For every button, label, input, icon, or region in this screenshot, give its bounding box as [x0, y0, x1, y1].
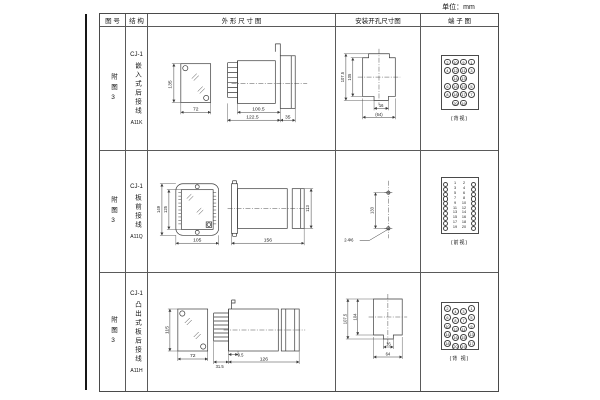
row2-model: CJ-1	[130, 184, 143, 190]
dim-r2-install-h: 133	[370, 206, 375, 214]
row3-terminal-grid: 2431687510121191416151318201917	[444, 305, 476, 348]
row2-terminal-grid: 1234567891011121314151617181920	[451, 181, 469, 230]
terminal-pin: 1	[468, 305, 475, 312]
row1-terminal-box: 2109141211314136161558181772019	[441, 55, 479, 110]
row3-terminal-caption: (背 视)	[450, 355, 470, 362]
row2-fig-no: 附图3	[108, 196, 118, 228]
dim-r3-side-1: 31.5	[216, 364, 225, 369]
row1-terminal-caption: (背视)	[451, 115, 468, 122]
terminal-pin: 14	[444, 331, 451, 338]
row3-terminal-cell: 2431687510121191416151318201917 (背 视)	[421, 273, 498, 391]
row1-side-view: 100.5 122.5 35	[228, 44, 308, 122]
terminal-pin: 5	[468, 314, 475, 321]
row3-outline-drawing: 115 72 9.5 31.5 126	[148, 273, 335, 391]
row1-front-view: 135 72	[167, 64, 210, 115]
row1-model: CJ-1	[130, 52, 143, 58]
row3-install-drawing-cell: 107.5 104 16 64	[336, 273, 421, 391]
dim-r1-front-width: 72	[193, 106, 199, 112]
terminal-pin: 16	[452, 83, 459, 90]
terminal-pin: 20	[460, 225, 469, 230]
row3-fig-no-cell: 附图3	[100, 273, 126, 391]
unit-label: 单位：mm	[420, 2, 497, 12]
row3-side-view: 9.5 31.5 126	[214, 300, 306, 369]
row1-fig-no-cell: 附图3	[100, 27, 126, 151]
terminal-pin: 9	[460, 59, 467, 66]
row2-install-drawing-cell: 133 2-Φ6	[336, 151, 421, 273]
terminal-pin: 19	[460, 343, 467, 350]
terminal-pin: 7	[468, 91, 475, 98]
row1-structure-cell: CJ-1 嵌入式后接线 A11K	[126, 27, 148, 151]
terminal-pin: 13	[460, 75, 467, 82]
terminal-pin: 9	[468, 323, 475, 330]
dim-r1-install-w2: (64)	[375, 112, 383, 117]
terminal-pin: 3	[460, 308, 467, 315]
terminal-pin: 4	[444, 67, 451, 74]
row3-fig-no: 附图3	[108, 316, 118, 348]
row2-side-view: 156 113	[228, 181, 314, 245]
row3-code: A11H	[130, 368, 142, 374]
terminal-pin: 18	[444, 340, 451, 347]
terminal-pin: 3	[468, 67, 475, 74]
row1-install-drawing-cell: 107.5 105 16 (64)	[336, 27, 421, 151]
terminal-pin: 1	[468, 59, 475, 66]
terminal-pin: 5	[468, 83, 475, 90]
header-terminal-diagram: 端 子 图	[421, 14, 498, 27]
dim-r2-side-height: 113	[305, 205, 310, 212]
dim-r3-front-height: 115	[164, 326, 170, 334]
terminal-pin: 18	[452, 91, 459, 98]
dim-r2-front-h2: 125	[163, 205, 168, 213]
terminal-pin: 10	[444, 323, 451, 330]
terminal-pin: 2	[444, 59, 451, 66]
terminal-pin: 15	[460, 334, 467, 341]
dim-r1-side-3: 35	[285, 115, 291, 121]
row2-install-drawing: 133 2-Φ6	[336, 151, 420, 272]
row2-code: A11Q	[130, 234, 142, 240]
row3-terminal-box: 2431687510121191416151318201917	[441, 302, 479, 351]
terminal-pin: 10	[452, 59, 459, 66]
dim-r2-front-h1: 149	[156, 205, 161, 213]
dim-r3-install-h1: 107.5	[342, 313, 347, 324]
row2-outline-drawing: 149 125 105 156 113	[148, 151, 335, 272]
terminal-pin: 12	[452, 67, 459, 74]
row1-fig-no: 附图3	[108, 73, 118, 105]
row2-structure-cell: CJ-1 板前接线 A11Q	[126, 151, 148, 273]
terminal-pin: 6	[444, 314, 451, 321]
terminal-pin: 8	[444, 91, 451, 98]
terminal-pin: 2	[444, 305, 451, 312]
row1-terminal-grid: 2109141211314136161558181772019	[444, 58, 476, 107]
header-outline-dims: 外 形 尺 寸 图	[148, 14, 336, 27]
header-fig-no: 图 号	[100, 14, 126, 27]
terminal-pin: 7	[460, 317, 467, 324]
terminal-pin: 16	[452, 334, 459, 341]
row1-terminal-cell: 2109141211314136161558181772019 (背视)	[421, 27, 498, 151]
row2-terminal-cell: 1234567891011121314151617181920 (前视)	[421, 151, 498, 273]
row3-structure-cell: CJ-1 凸出式板后接线 A11H	[126, 273, 148, 391]
row2-front-view: 149 125 105	[156, 184, 219, 245]
terminal-pin: 4	[452, 308, 459, 315]
dim-r3-side-2: 9.5	[238, 352, 244, 357]
terminal-pin: 11	[460, 326, 467, 333]
header-install-holes: 安装开孔尺寸图	[336, 14, 421, 27]
row2-fig-no-cell: 附图3	[100, 151, 126, 273]
row2-terminal-caption: (前视)	[451, 239, 468, 246]
terminal-pin: 12	[452, 326, 459, 333]
header-structure: 结 构	[126, 14, 148, 27]
row1-outline-drawing: 135 72 100.5 122.5 35	[148, 27, 335, 150]
terminal-pin: 6	[444, 83, 451, 90]
spec-table: 图 号 结 构 外 形 尺 寸 图 安装开孔尺寸图 端 子 图 附图3 CJ-1…	[99, 13, 499, 392]
page-edge-artifact	[85, 14, 87, 390]
terminal-pin: 19	[451, 225, 460, 230]
row2-mount-type: 板前接线	[132, 194, 142, 230]
terminal-pin: 19	[460, 100, 467, 107]
row3-install-drawing: 107.5 104 16 64	[336, 273, 420, 391]
dim-r1-side-2: 122.5	[246, 115, 259, 121]
terminal-pin: 17	[460, 91, 467, 98]
dim-r3-side-3: 126	[260, 356, 269, 362]
dim-r1-front-height: 135	[167, 80, 173, 88]
dim-r2-hole-label: 2-Φ6	[344, 238, 354, 243]
terminal-pin: 20	[452, 100, 459, 107]
terminal-pin: 17	[468, 340, 475, 347]
row1-code: A11K	[131, 120, 143, 126]
terminal-pin: 20	[452, 343, 459, 350]
dim-r1-install-w1: 16	[379, 103, 384, 108]
row3-model: CJ-1	[130, 291, 143, 297]
dim-r2-front-width: 105	[193, 238, 202, 244]
row1-outline-drawing-cell: 135 72 100.5 122.5 35	[148, 27, 336, 151]
dim-r3-install-h2: 104	[352, 313, 357, 321]
dim-r2-side-length: 156	[264, 238, 273, 244]
terminal-pin: 15	[460, 83, 467, 90]
terminal-pin: 11	[460, 67, 467, 74]
row2-terminal-box: 1234567891011121314151617181920	[441, 177, 479, 234]
terminal-pin: 8	[452, 317, 459, 324]
dim-r1-install-h1: 107.5	[340, 71, 345, 82]
row2-outline-drawing-cell: 149 125 105 156 113	[148, 151, 336, 273]
dim-r3-install-w1: 16	[386, 341, 391, 346]
dim-r1-side-1: 100.5	[252, 106, 265, 112]
row3-front-view: 115 72	[164, 309, 207, 361]
dim-r3-front-width: 72	[190, 353, 196, 359]
dim-r3-install-w2: 64	[386, 351, 391, 356]
row1-install-drawing: 107.5 105 16 (64)	[336, 27, 420, 150]
row1-mount-type: 嵌入式后接线	[132, 62, 142, 116]
dim-r1-install-h2: 105	[347, 73, 352, 81]
terminal-pin: 14	[452, 75, 459, 82]
row3-outline-drawing-cell: 115 72 9.5 31.5 126	[148, 273, 336, 391]
row3-mount-type: 凸出式板后接线	[132, 301, 142, 364]
terminal-pin: 13	[468, 331, 475, 338]
